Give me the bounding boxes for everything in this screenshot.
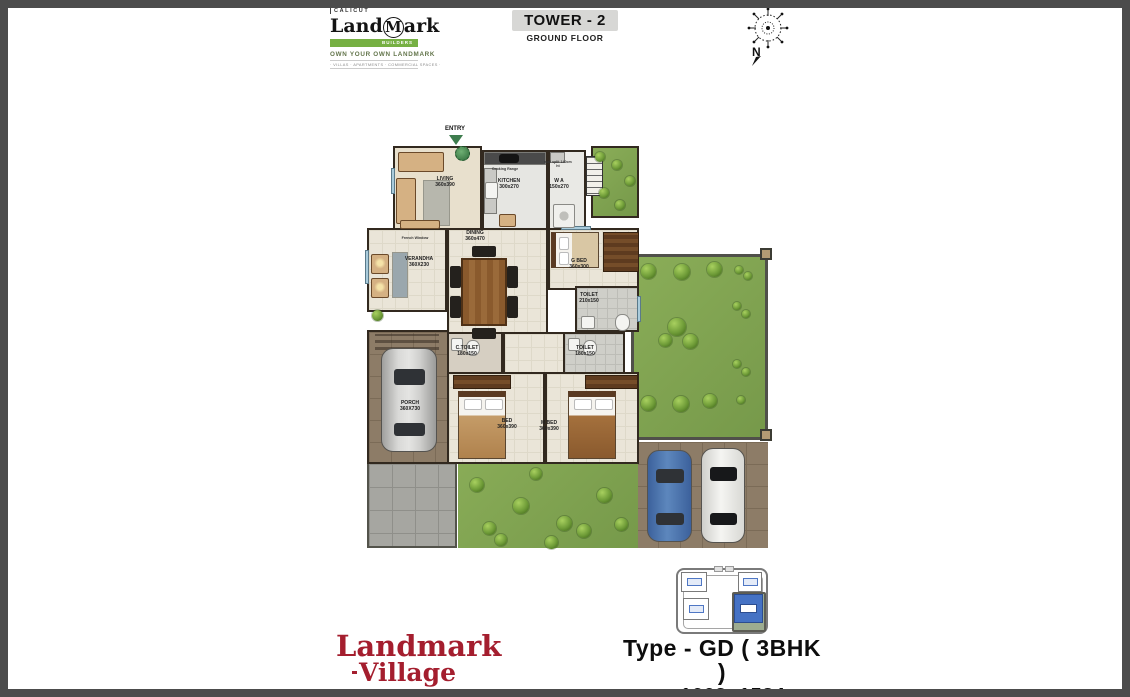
entry-label: ENTRY	[435, 126, 475, 132]
wardrobe	[603, 232, 639, 272]
area-label: Area -	[630, 689, 675, 697]
floorplan-page: CALICUT LandMark BUILDERS OWN YOUR OWN L…	[0, 0, 1130, 697]
logo-brand-text: LandMark	[330, 14, 418, 38]
car-rear-window	[394, 423, 425, 436]
bush	[707, 262, 722, 277]
logo-builders-bar: BUILDERS	[330, 39, 418, 47]
area-value: 1663+1584	[680, 685, 785, 697]
toilet-sink	[581, 316, 595, 329]
project-logo: Landmark Village	[336, 632, 456, 687]
bush	[737, 396, 745, 404]
room-dim: 360X730	[389, 406, 431, 412]
key-plan-unit	[681, 572, 707, 592]
bush	[641, 396, 656, 411]
compass-icon: N	[744, 4, 792, 66]
sofa	[396, 178, 416, 224]
room-label-toilet-guest: TOILET 210x150	[567, 292, 611, 304]
hallway	[503, 332, 565, 374]
tower-title: TOWER - 2	[512, 10, 618, 31]
dining-chair	[450, 266, 461, 288]
bush	[612, 160, 622, 170]
bush	[674, 264, 690, 280]
bush	[703, 394, 717, 408]
room-label-guest-bed: G BED 360x300	[557, 258, 601, 270]
car-windshield	[710, 467, 737, 481]
room-dim: 360x390	[529, 426, 569, 432]
floor-subtitle: GROUND FLOOR	[512, 33, 618, 43]
key-plan-unit-tag	[740, 604, 757, 613]
room-dim: 360x390	[423, 182, 467, 188]
lamp-table	[371, 254, 389, 274]
logo-tagline: OWN YOUR OWN LANDMARK	[330, 51, 418, 58]
key-plan-unit-tag	[687, 578, 702, 586]
paved-yard	[367, 462, 457, 548]
car-windshield	[394, 369, 425, 385]
room-dim: 360x390	[487, 424, 527, 430]
room-dim: 210x150	[567, 298, 611, 304]
window	[637, 296, 641, 322]
lamp-table	[371, 278, 389, 298]
bush	[599, 188, 609, 198]
builder-logo: CALICUT LandMark BUILDERS OWN YOUR OWN L…	[330, 8, 418, 69]
logo-categories: · VILLAS · APARTMENTS · COMMERCIAL SPACE…	[330, 60, 418, 69]
bush	[557, 516, 572, 531]
sofa	[400, 220, 440, 229]
room-dim: 360x470	[453, 236, 497, 242]
key-plan-unit	[738, 572, 762, 592]
bush	[483, 522, 496, 535]
bush	[470, 478, 484, 492]
unit-area-line: Area - 1663+1584 sqft	[622, 685, 822, 697]
logo-m-circle-icon: M	[383, 17, 404, 38]
bush	[641, 264, 656, 279]
blue-car	[647, 450, 692, 542]
pillow	[595, 399, 613, 410]
entry-column-icon	[455, 146, 470, 161]
bush	[742, 310, 750, 318]
key-plan-unit-tag	[689, 605, 704, 613]
room-label-verandah: VERANDHA 360X230	[395, 256, 443, 268]
window	[391, 168, 395, 194]
area-unit: sqft	[790, 690, 814, 697]
room-label-porch: PORCH 360X730	[389, 400, 431, 412]
toilet-wc	[615, 314, 630, 331]
dining-table	[461, 258, 507, 326]
room-label-kitchen: KITCHEN 300x270	[487, 178, 531, 190]
annotation-cooking-range: Cooking Range	[483, 167, 527, 171]
bush	[595, 152, 605, 162]
bush	[659, 334, 672, 347]
dining-chair	[507, 296, 518, 318]
bush	[668, 318, 686, 336]
unit-type-title: Type - GD ( 3BHK )	[622, 636, 822, 684]
potted-plant	[372, 310, 383, 321]
entry-arrow-icon	[449, 135, 463, 145]
pillow	[485, 399, 503, 410]
room-label-dining: DINING 360x470	[453, 230, 497, 242]
bush	[625, 176, 635, 186]
room-label-common-toilet: C.TOILET 180x150	[445, 345, 489, 357]
pillow	[559, 237, 569, 250]
white-car	[701, 448, 745, 543]
room-dim: 180x150	[445, 351, 489, 357]
pillow	[464, 399, 482, 410]
cooktop	[499, 154, 519, 163]
annotation-french-window: French Window	[393, 236, 437, 240]
dining-chair	[472, 328, 496, 339]
bush	[615, 518, 628, 531]
room-dim: 360x300	[557, 264, 601, 270]
bush	[742, 368, 750, 376]
floor-plan: PORCH 360X730	[365, 126, 769, 550]
bush	[683, 334, 698, 349]
bush	[513, 498, 529, 514]
key-plan-unit	[683, 598, 709, 620]
master-bed	[568, 391, 616, 459]
wall-pillar	[760, 429, 772, 441]
room-dim: 360X230	[395, 262, 443, 268]
room-label-master-bed: M BED 360x390	[529, 420, 569, 432]
annotation-wall-split: wall split 140cm ht	[543, 160, 573, 169]
wardrobe	[585, 375, 638, 389]
room-dim: 180x150	[563, 351, 607, 357]
logo-dash	[352, 671, 357, 674]
window	[365, 250, 369, 284]
dining-chair	[450, 296, 461, 318]
room-label-work-area: W A 150x270	[537, 178, 581, 190]
room-dim: 150x270	[537, 184, 581, 190]
key-plan-lobby	[714, 566, 723, 572]
bush	[530, 468, 542, 480]
bush	[733, 360, 741, 368]
key-plan-lobby	[725, 566, 734, 572]
fridge	[499, 214, 516, 227]
key-plan-unit-tag	[743, 578, 758, 586]
dining-chair	[507, 266, 518, 288]
bush	[495, 534, 507, 546]
room-label-bed: BED 360x390	[487, 418, 527, 430]
car-rear-window	[656, 513, 684, 525]
rear-lawn	[631, 254, 768, 440]
room-label-living: LIVING 360x390	[423, 176, 467, 188]
bush	[615, 200, 625, 210]
unit-type-block: Type - GD ( 3BHK ) Area - 1663+1584 sqft…	[622, 636, 822, 697]
key-plan-highlighted-unit	[734, 594, 763, 623]
wall-pillar	[760, 248, 772, 260]
project-logo-line1: Landmark	[336, 632, 456, 661]
bush	[735, 266, 743, 274]
sofa	[398, 152, 444, 172]
project-logo-line2: Village	[336, 659, 456, 687]
washing-machine	[553, 204, 575, 228]
room-dim: 300x270	[487, 184, 531, 190]
bush	[597, 488, 612, 503]
wardrobe	[453, 375, 511, 389]
room-label-toilet-master: TOILET 180x150	[563, 345, 607, 357]
bush	[744, 272, 752, 280]
pillow	[574, 399, 592, 410]
bush	[673, 396, 689, 412]
car-windshield	[656, 469, 684, 483]
key-plan	[670, 564, 774, 638]
bush	[733, 302, 741, 310]
dining-chair	[472, 246, 496, 257]
car-rear-window	[710, 513, 737, 525]
bush	[577, 524, 591, 538]
bush	[545, 536, 558, 549]
